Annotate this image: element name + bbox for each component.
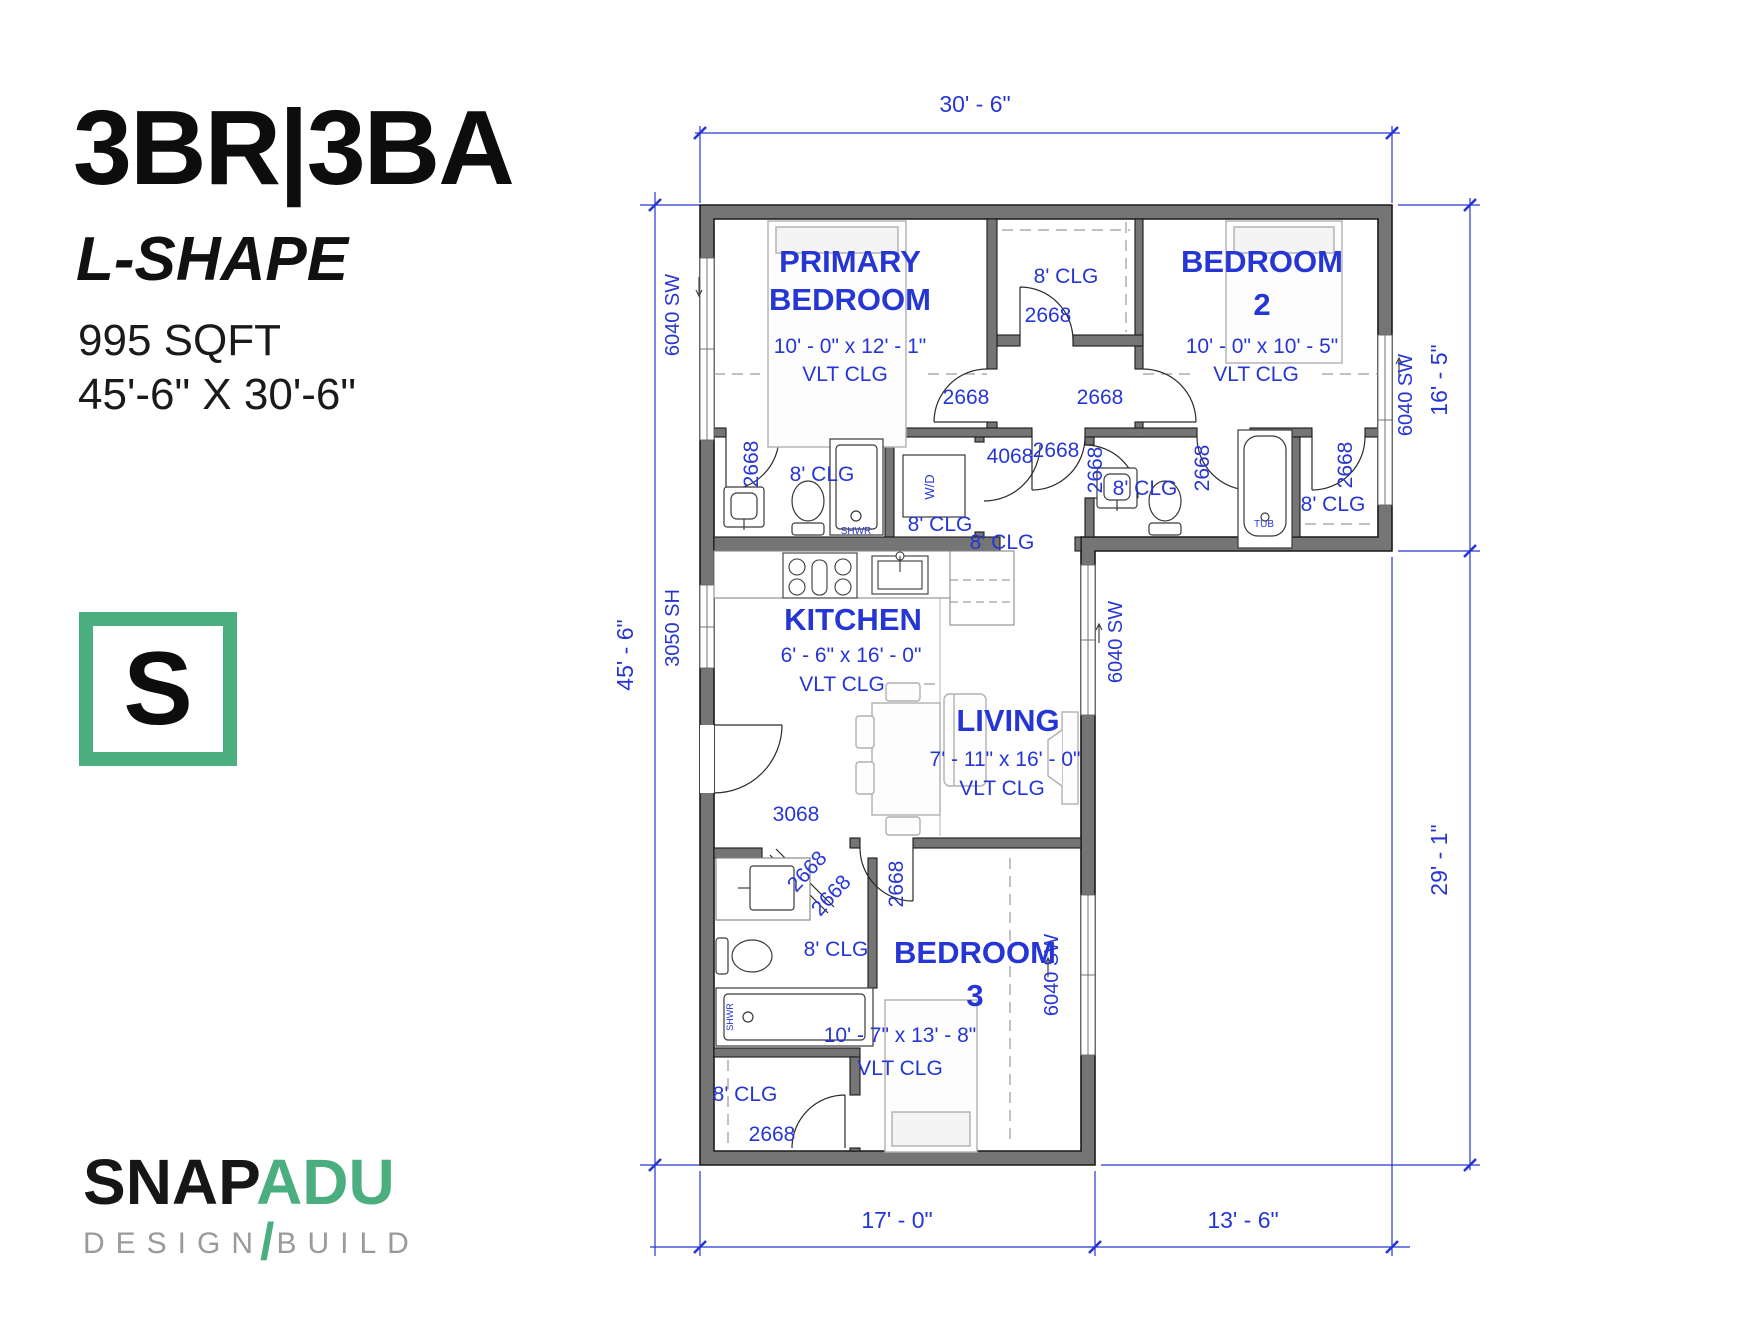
plan-label-door-primary: 2668 (943, 386, 990, 409)
stove-icon (783, 553, 857, 598)
kitchen-sink-icon (872, 552, 928, 594)
plan-label-hall-clg: 8' CLG (970, 531, 1035, 554)
plan-label-shwr3-label: SHWR (725, 1003, 735, 1031)
plan-label-door-bedroom3: 2668 (885, 861, 908, 908)
plan-label-bath3-clg: 8' CLG (804, 938, 869, 961)
plan-label-room-bedroom3-name-1: BEDROOM (894, 935, 1056, 970)
plan-label-dim-bottom-left: 17' - 0" (861, 1207, 932, 1233)
plan-label-room-bedroom2-dims: 10' - 0" x 10' - 5" (1186, 335, 1339, 358)
plan-label-window-bedroom2: 6040 SW (1395, 354, 1417, 436)
plan-label-shwr-label: SHWR (841, 526, 872, 537)
plan-label-closet-top-clg: 8' CLG (1034, 265, 1099, 288)
refrigerator-icon (950, 551, 1014, 625)
door-entry-swing (714, 725, 782, 793)
plan-label-room-kitchen-dims: 6' - 6" x 16' - 0" (781, 644, 922, 667)
plan-label-room-primary-name-2: BEDROOM (769, 282, 931, 317)
plan-label-room-primary-clg: VLT CLG (802, 363, 888, 386)
bath-primary-sink-icon (724, 487, 764, 530)
door-closet-bedroom3-swing (792, 1095, 845, 1148)
plan-label-door-bedroom2: 2668 (1077, 386, 1124, 409)
plan-label-window-living: 6040 SW (1105, 601, 1127, 683)
plan-label-bath-primary-clg: 8' CLG (790, 463, 855, 486)
plan-label-bath2-clg: 8' CLG (1113, 477, 1178, 500)
plan-label-window-primary: 6040 SW (662, 274, 684, 356)
plan-label-room-kitchen-clg: VLT CLG (799, 673, 885, 696)
bath-primary-shower-icon (830, 439, 883, 535)
plan-label-window-bedroom3: 6040 SW (1041, 934, 1063, 1016)
door-bedroom2-swing (1143, 369, 1196, 422)
plan-label-closet-bedroom2-clg: 8' CLG (1301, 493, 1366, 516)
plan-label-room-bedroom2-name-1: BEDROOM (1181, 244, 1343, 279)
plan-label-closet-top-door: 2668 (1025, 304, 1072, 327)
entry-door-opening (700, 725, 714, 793)
bath3-toilet-icon (716, 938, 772, 974)
plan-label-door-bath2: 2668 (1084, 447, 1107, 494)
window-bedroom2 (1378, 335, 1392, 505)
plan-label-dim-right-upper: 16' - 5" (1426, 344, 1452, 415)
window-kitchen-sh (700, 585, 714, 668)
plan-label-door-bath2-bedroom: 2668 (1191, 445, 1214, 492)
plan-label-tub-label: TUB (1254, 519, 1274, 530)
plan-label-room-bedroom3-dims: 10' - 7" x 13' - 8" (824, 1024, 977, 1047)
plan-label-door-bath-primary: 2668 (740, 441, 763, 488)
plan-label-dim-top: 30' - 6" (939, 91, 1010, 117)
plan-label-door-lobby: 2668 (1033, 439, 1080, 462)
plan-label-window-kitchen: 3050 SH (662, 589, 684, 667)
plan-label-dim-left: 45' - 6" (612, 619, 638, 690)
flyer-page: 3BR|3BA L-SHAPE 995 SQFT 45'-6" X 30'-6"… (0, 0, 1739, 1344)
plan-label-room-primary-name-1: PRIMARY (779, 244, 921, 279)
plan-label-room-living-name: LIVING (956, 703, 1059, 738)
window-bedroom3 (1081, 895, 1095, 1055)
plan-label-wd-clg: 8' CLG (908, 513, 973, 536)
plan-label-room-kitchen-name: KITCHEN (784, 602, 922, 637)
plan-label-room-living-dims: 7' - 11" x 16' - 0" (930, 748, 1081, 771)
window-primary-bedroom (700, 258, 714, 440)
bath2-tub-icon (1238, 430, 1292, 548)
bath-primary-toilet-icon (792, 481, 824, 535)
plan-label-room-bedroom3-clg: VLT CLG (857, 1057, 943, 1080)
plan-label-wd-label: W/D (922, 474, 937, 499)
plan-label-room-bedroom2-name-2: 2 (1253, 287, 1270, 322)
plan-label-closet-bedroom3-clg: 8' CLG (713, 1083, 778, 1106)
window-living (1081, 565, 1095, 715)
window-arrow-icon (1096, 624, 1102, 643)
plan-labels: 30' - 6"45' - 6"16' - 5"29' - 1"17' - 0"… (612, 91, 1452, 1233)
plan-label-door-entry: 3068 (773, 803, 820, 826)
plan-label-room-primary-dims: 10' - 0" x 12' - 1" (774, 335, 927, 358)
plan-label-dim-bottom-right: 13' - 6" (1207, 1207, 1278, 1233)
plan-label-room-bedroom2-clg: VLT CLG (1213, 363, 1299, 386)
plan-label-door-closet-bedroom3: 2668 (749, 1123, 796, 1146)
plan-label-room-bedroom3-name-2: 3 (966, 978, 983, 1013)
floor-plan: 30' - 6"45' - 6"16' - 5"29' - 1"17' - 0"… (0, 0, 1739, 1344)
plan-label-room-living-clg: VLT CLG (959, 777, 1045, 800)
plan-label-dim-right-lower: 29' - 1" (1426, 824, 1452, 895)
plan-label-door-wd: 4068 (987, 445, 1034, 468)
plan-label-door-closet-bedroom2: 2668 (1334, 442, 1357, 489)
